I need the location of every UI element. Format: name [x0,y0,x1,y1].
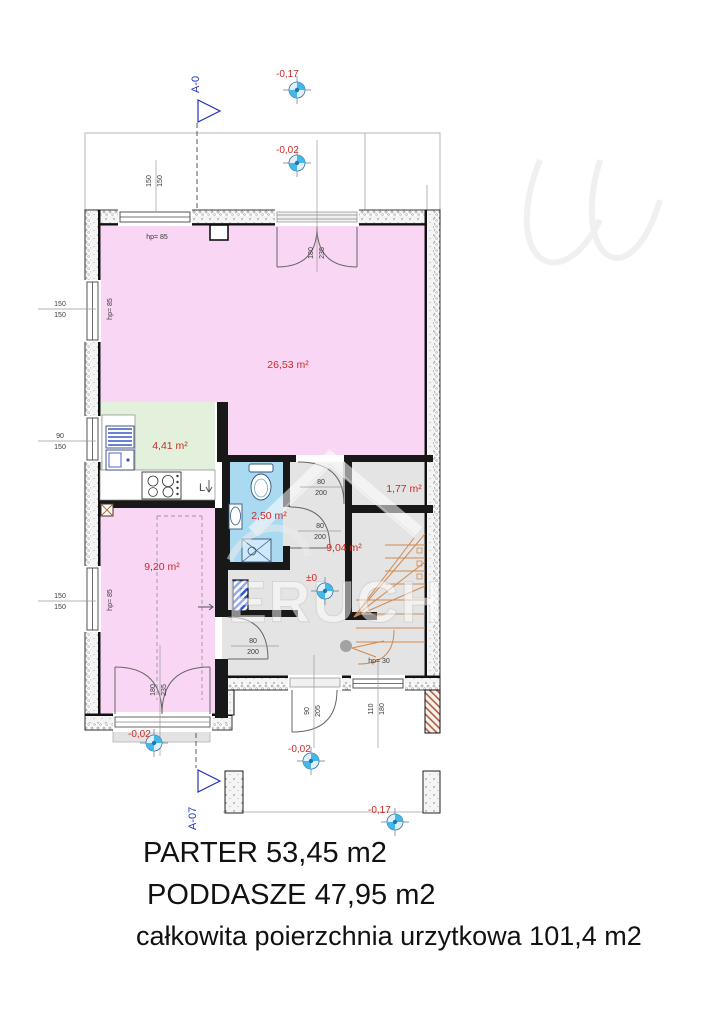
door-entry-threshold [290,678,340,687]
room-label-hall: 9,04 m² [326,542,362,554]
room-label-living: 26,53 m² [267,359,309,371]
dim-win-kitchen-w: 90 [56,433,64,440]
vent-box-icon [101,504,113,516]
dim-win-left-lower-h: 150 [54,604,66,611]
dim-win-left-upper-h: 150 [54,312,66,319]
dim-door-top-h: 235 [319,247,326,259]
room-label-bedroom: 9,20 m² [144,561,180,573]
room-label-storage: 1,77 m² [386,483,422,495]
section-label: A-0 [190,76,202,93]
level-label: -0,17 [276,69,299,80]
dim-door-terrace-h: 235 [161,684,168,696]
porch-column [225,771,243,813]
dim-door-top-w: 180 [308,247,315,259]
dim-door-bedroom-h: 200 [247,649,259,656]
dim-win-left-lower-w: 150 [54,593,66,600]
dim-win-top-h: 150 [157,175,164,187]
section-triangle-icon [198,100,220,122]
level-label: -0,17 [368,805,391,816]
chimney-notch [210,225,228,240]
dim-door-entry-h: 205 [315,705,322,717]
section-label: A-07 [187,807,199,830]
stair-newel [340,640,352,652]
stove-icon [142,472,181,499]
corner-pier [425,690,440,733]
room-label-bathroom: 2,50 m² [251,510,287,522]
floor-plan-canvas: L [0,0,724,1024]
toilet-icon [249,464,273,500]
dim-door-terrace-w: 180 [150,684,157,696]
level-label: -0,02 [276,145,299,156]
kitchen-appliance-icon [106,426,134,448]
dim-door-bath-w: 80 [316,523,324,530]
summary-line-total: całkowita poierzchnia urzytkowa 101,4 m2 [136,921,642,951]
watermark-text: ERUCH [228,570,444,635]
level-marker-icon [283,76,311,104]
dim-door-bedroom-w: 80 [249,638,257,645]
summary-line-poddasze: PODDASZE 47,95 m2 [147,879,436,911]
dim-win-kitchen-h: 150 [54,444,66,451]
area-summary: PARTER 53,45 m2 PODDASZE 47,95 m2 całkow… [136,837,642,951]
dim-win-top-w: 150 [146,175,153,187]
level-label: ±0 [306,573,317,584]
washbasin-icon [229,504,242,529]
sill-left-lower: hp= 85 [107,589,114,611]
dim-win-front-h: 180 [379,703,386,715]
porch-column [423,771,440,813]
dim-door-entry-w: 90 [304,707,311,715]
dim-door-bath-h: 200 [314,534,326,541]
section-triangle-icon [198,770,220,792]
floor-plan-page: L [0,0,724,1024]
room-label-kitchen: 4,41 m² [152,440,188,452]
summary-line-parter: PARTER 53,45 m2 [143,837,387,869]
dim-door-living-h: 200 [315,490,327,497]
sill-top: hp= 85 [146,234,168,241]
dim-door-living-w: 80 [317,479,325,486]
sill-left-upper: hp= 85 [107,298,114,320]
dim-win-front-w: 110 [368,703,375,714]
room-bedroom-floor [100,508,215,714]
fridge-label: L [199,482,205,494]
stair-landing-height: hp= 30 [368,658,390,665]
porch-columns [225,771,440,813]
kitchen-sink-icon [106,450,134,470]
dim-win-left-upper-w: 150 [54,301,66,308]
